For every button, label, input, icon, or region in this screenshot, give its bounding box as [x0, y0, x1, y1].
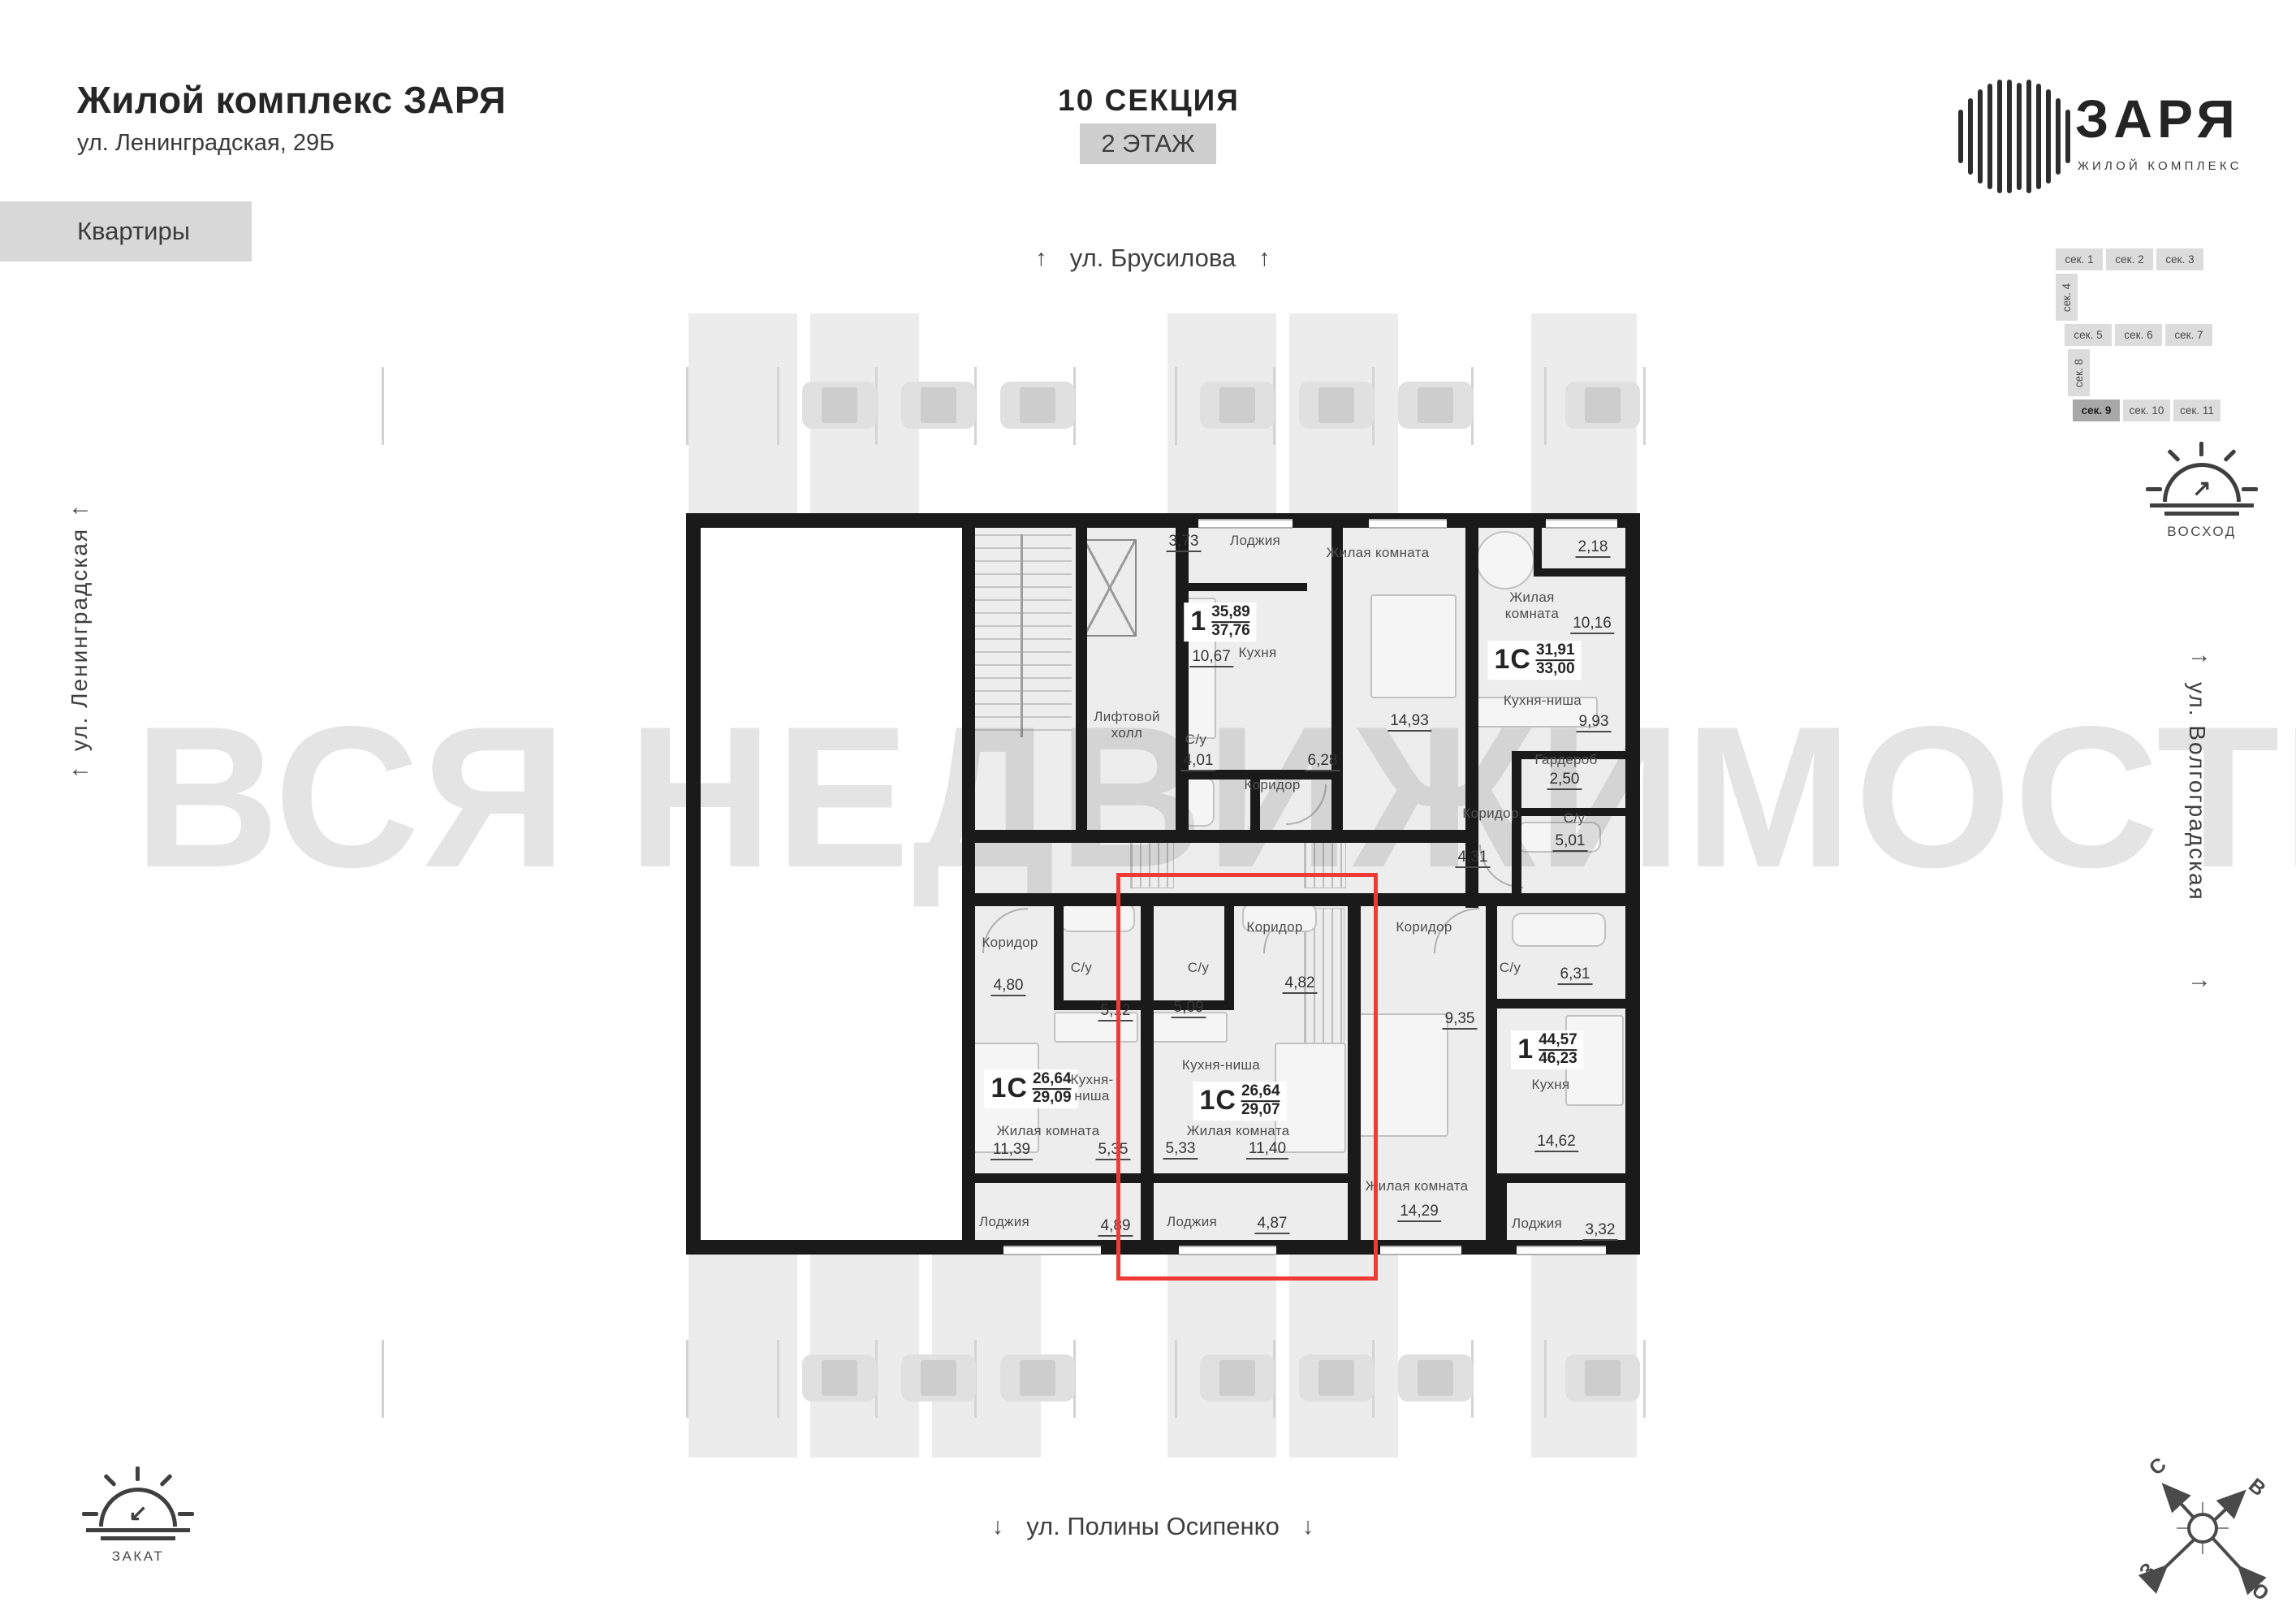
- compass-north-label: С: [2145, 1453, 2171, 1480]
- floorplan-page: Жилой комплекс ЗАРЯ ул. Ленинградская, 2…: [0, 0, 2296, 1624]
- parking-line: [1643, 1340, 1646, 1418]
- wall: [1076, 513, 1087, 843]
- section-map-item-2[interactable]: сек. 2: [2106, 248, 2153, 270]
- empty-room: [701, 528, 962, 1240]
- wall: [686, 513, 701, 1255]
- elevator-shaft: [1083, 539, 1137, 637]
- tab-apartments[interactable]: Квартиры: [0, 201, 252, 261]
- parking-line: [1544, 367, 1547, 445]
- car-icon: [1299, 1354, 1374, 1402]
- section-map-item-7[interactable]: сек. 7: [2165, 324, 2212, 346]
- parking-line: [1175, 367, 1177, 445]
- section-map-item-11[interactable]: сек. 11: [2173, 400, 2220, 421]
- car-icon: [1000, 382, 1075, 429]
- down-arrow-icon: ↓: [1302, 1514, 1314, 1540]
- car-icon: [1398, 382, 1473, 429]
- street-bottom: ↓ ул. Полины Осипенко ↓: [992, 1512, 1314, 1541]
- left-arrow-icon: ←: [68, 755, 93, 783]
- floor-badge[interactable]: 2 ЭТАЖ: [1080, 123, 1216, 164]
- parking-line: [777, 1340, 779, 1418]
- down-arrow-icon: ↓: [992, 1514, 1004, 1540]
- facade-strip: [688, 1255, 797, 1458]
- tab-apartments-label: Квартиры: [77, 217, 190, 246]
- apartment-top-left[interactable]: [1176, 513, 1478, 843]
- street-right-label: ул. Волгоградская: [2184, 682, 2210, 901]
- car-icon: [1200, 382, 1275, 429]
- car-icon: [1200, 1354, 1275, 1402]
- car-icon: [1299, 382, 1374, 429]
- compass-south-label: Ю: [2242, 1574, 2273, 1600]
- section-map-item-6[interactable]: сек. 6: [2115, 324, 2162, 346]
- page-address: ул. Ленинградская, 29Б: [77, 130, 334, 157]
- section-map-item-4[interactable]: сек. 4: [2056, 274, 2078, 321]
- sunrise-arrow-icon: ↗: [2192, 474, 2211, 501]
- car-icon: [901, 382, 976, 429]
- street-bottom-label: ул. Полины Осипенко: [1026, 1512, 1280, 1541]
- section-title: 10 СЕКЦИЯ: [1058, 84, 1240, 118]
- car-icon: [1000, 1354, 1075, 1402]
- sunset-arrow-icon: ↙: [128, 1499, 147, 1526]
- street-top: ↑ ул. Брусилова ↑: [1035, 244, 1270, 273]
- section-map-item-3[interactable]: сек. 3: [2156, 248, 2203, 270]
- logo-name: ЗАРЯ: [2075, 88, 2240, 149]
- section-map-item-8-label: сек. 8: [2073, 358, 2085, 387]
- sunrise-icon: ↗ ВОСХОД: [2141, 442, 2263, 540]
- section-map-item-8[interactable]: сек. 8: [2068, 349, 2090, 396]
- car-icon: [1398, 1354, 1473, 1402]
- sunset-icon: ↙ ЗАКАТ: [77, 1466, 199, 1565]
- section-map-item-9-current[interactable]: сек. 9: [2073, 400, 2120, 421]
- apartment-bottom-right[interactable]: [1348, 893, 1638, 1255]
- compass-west-label: З: [2135, 1558, 2160, 1584]
- parking-line: [1175, 1340, 1177, 1418]
- car-icon: [1565, 382, 1640, 429]
- car-icon: [1565, 1354, 1640, 1402]
- floor-badge-label: 2 ЭТАЖ: [1101, 129, 1194, 158]
- logo-sun-icon: [1958, 80, 2070, 193]
- facade-strip: [688, 313, 797, 513]
- car-icon: [802, 382, 877, 429]
- right-arrow-icon: →: [2187, 641, 2212, 669]
- apartment-selected[interactable]: [1141, 893, 1361, 1255]
- section-map-item-4-label: сек. 4: [2061, 283, 2073, 311]
- sunset-label: ЗАКАТ: [77, 1548, 199, 1565]
- parking-line: [1544, 1340, 1547, 1418]
- apartment-top-right[interactable]: [1465, 513, 1640, 908]
- left-arrow-icon: ←: [68, 494, 93, 521]
- logo-tagline: ЖИЛОЙ КОМПЛЕКС: [2078, 159, 2242, 173]
- parking-line: [686, 1340, 688, 1418]
- compass-rose: С В З Ю: [2134, 1453, 2277, 1600]
- parking-line: [686, 367, 688, 445]
- parking-line: [1643, 367, 1646, 445]
- car-icon: [802, 1354, 877, 1402]
- page-title: Жилой комплекс ЗАРЯ: [77, 78, 506, 122]
- stairs-divider: [1021, 534, 1023, 737]
- section-map-item-5[interactable]: сек. 5: [2065, 324, 2112, 346]
- up-arrow-icon: ↑: [1258, 245, 1271, 272]
- right-arrow-icon: →: [2187, 966, 2212, 994]
- parking-line: [382, 367, 384, 445]
- sunrise-label: ВОСХОД: [2141, 524, 2263, 540]
- car-icon: [901, 1354, 976, 1402]
- parking-line: [382, 1340, 384, 1418]
- street-left-label: ул. Ленинградская: [67, 528, 93, 751]
- apartment-bottom-left[interactable]: [962, 893, 1154, 1255]
- section-map-item-10[interactable]: сек. 10: [2123, 400, 2170, 421]
- section-map-item-1[interactable]: сек. 1: [2056, 248, 2103, 270]
- street-top-label: ул. Брусилова: [1070, 244, 1236, 273]
- lift-hall-label: Лифтовой холл: [1082, 709, 1172, 741]
- compass-east-label: В: [2244, 1474, 2270, 1501]
- up-arrow-icon: ↑: [1035, 245, 1047, 272]
- parking-line: [777, 367, 779, 445]
